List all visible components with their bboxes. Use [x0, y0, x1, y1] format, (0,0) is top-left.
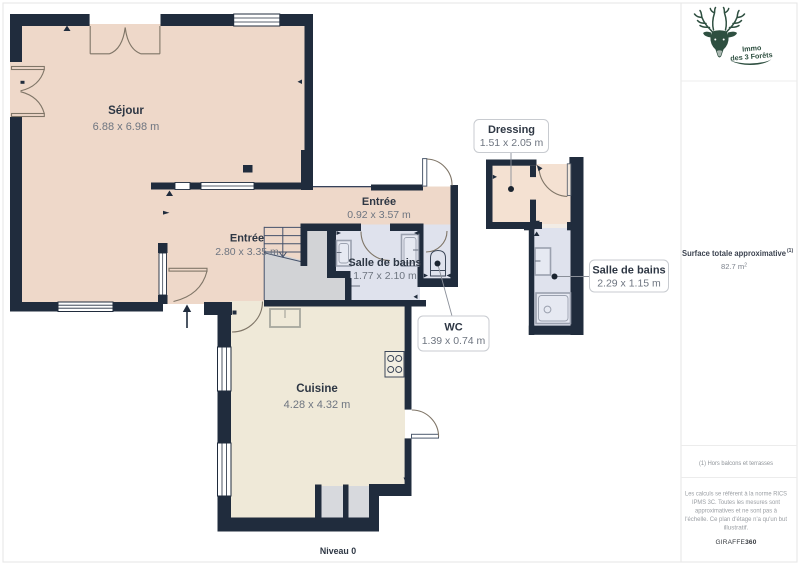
svg-text:approximatives et ne sont pas: approximatives et ne sont pas à: [695, 508, 777, 515]
svg-text:IPMS 3C. Toutes les mesures so: IPMS 3C. Toutes les mesures sont: [692, 499, 780, 506]
svg-text:82.7 m2: 82.7 m2: [721, 262, 747, 271]
svg-text:Salle de bains: Salle de bains: [592, 265, 665, 277]
svg-text:des 3 Forêts: des 3 Forêts: [730, 50, 773, 63]
svg-text:Entrée: Entrée: [230, 233, 264, 245]
svg-text:Séjour: Séjour: [108, 105, 144, 117]
svg-text:2.29 x 1.15 m: 2.29 x 1.15 m: [597, 278, 661, 290]
svg-text:Dressing: Dressing: [488, 124, 535, 136]
svg-text:Salle de bains: Salle de bains: [348, 257, 421, 269]
svg-text:GIRAFFE360: GIRAFFE360: [715, 539, 756, 546]
svg-text:Cuisine: Cuisine: [296, 383, 338, 395]
svg-text:l'échelle. Ce plan d'étage n'a: l'échelle. Ce plan d'étage n'a qu'un but: [685, 516, 787, 523]
svg-text:2.80 x 3.35 m: 2.80 x 3.35 m: [215, 246, 279, 258]
svg-text:6.88 x 6.98 m: 6.88 x 6.98 m: [93, 121, 160, 133]
svg-text:1.39 x 0.74 m: 1.39 x 0.74 m: [422, 335, 486, 347]
svg-text:illustratif.: illustratif.: [724, 525, 749, 532]
svg-text:Niveau 0: Niveau 0: [320, 546, 356, 556]
svg-text:Entrée: Entrée: [362, 196, 396, 208]
svg-text:Les calculs se réfèrent à la n: Les calculs se réfèrent à la norme RICS: [685, 491, 787, 498]
svg-text:Surface totale approximative: Surface totale approximative: [682, 249, 787, 258]
svg-text:WC: WC: [444, 322, 462, 334]
svg-text:(1): (1): [787, 248, 793, 254]
svg-text:4.28 x 4.32 m: 4.28 x 4.32 m: [284, 399, 351, 411]
svg-text:(1) Hors balcons et terrasses: (1) Hors balcons et terrasses: [699, 460, 773, 467]
svg-text:1.77 x 2.10 m: 1.77 x 2.10 m: [353, 270, 417, 282]
svg-text:1.51 x 2.05 m: 1.51 x 2.05 m: [480, 137, 544, 149]
svg-text:0.92 x 3.57 m: 0.92 x 3.57 m: [347, 209, 411, 221]
